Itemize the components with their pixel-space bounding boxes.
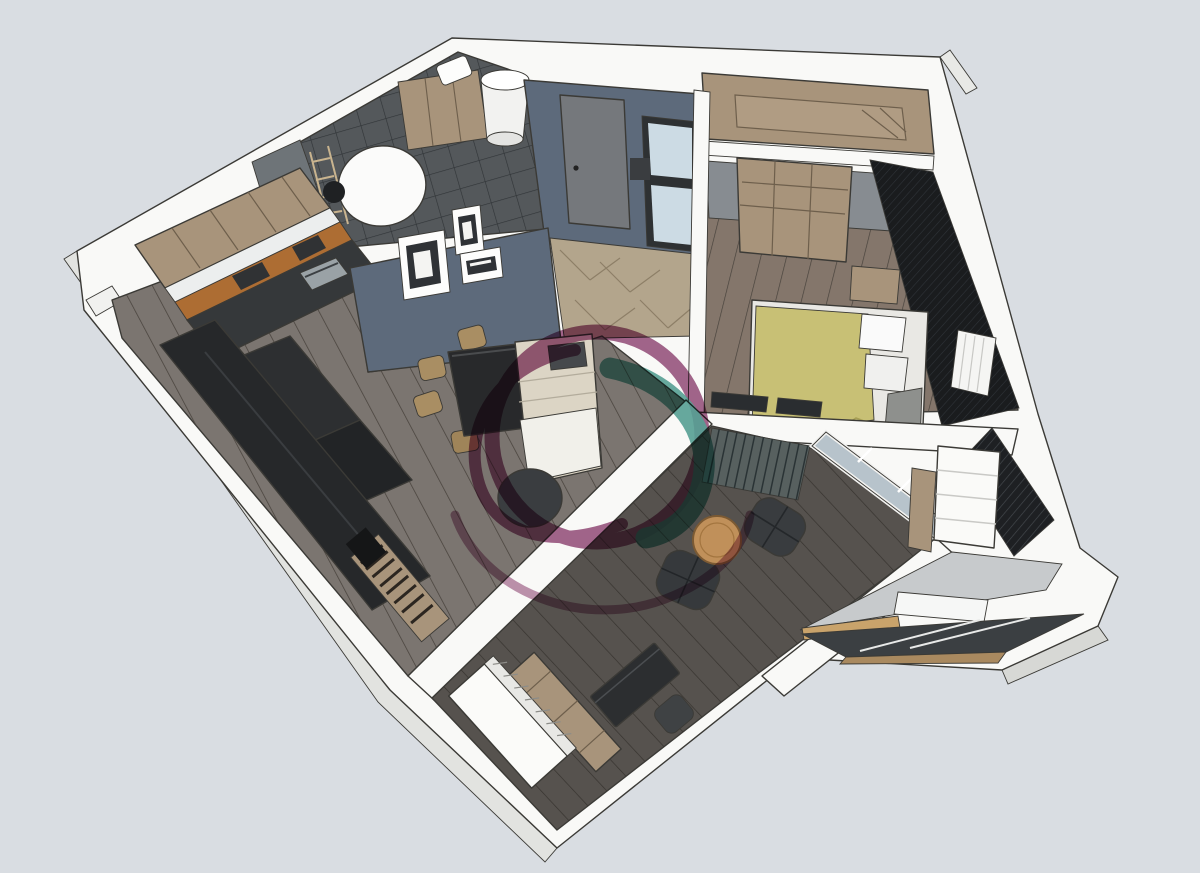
- floor-plan-render: [0, 0, 1200, 873]
- floor-plan-page: [0, 0, 1200, 873]
- interior-door: [560, 95, 630, 229]
- dining-chair: [417, 355, 447, 382]
- water-heater: [481, 70, 529, 146]
- picture-frame-landscape: [460, 247, 503, 284]
- picture-frame: [398, 230, 450, 300]
- pillow: [864, 354, 908, 392]
- room-walk-in-closet: [702, 73, 934, 170]
- white-shelving: [934, 446, 1000, 548]
- pillow: [859, 314, 906, 352]
- towel-blob: [323, 181, 345, 203]
- nightstand: [850, 266, 900, 304]
- radiator: [951, 330, 996, 396]
- open-wardrobe: [737, 158, 852, 262]
- wood-panel: [908, 468, 936, 552]
- picture-frame: [452, 205, 484, 255]
